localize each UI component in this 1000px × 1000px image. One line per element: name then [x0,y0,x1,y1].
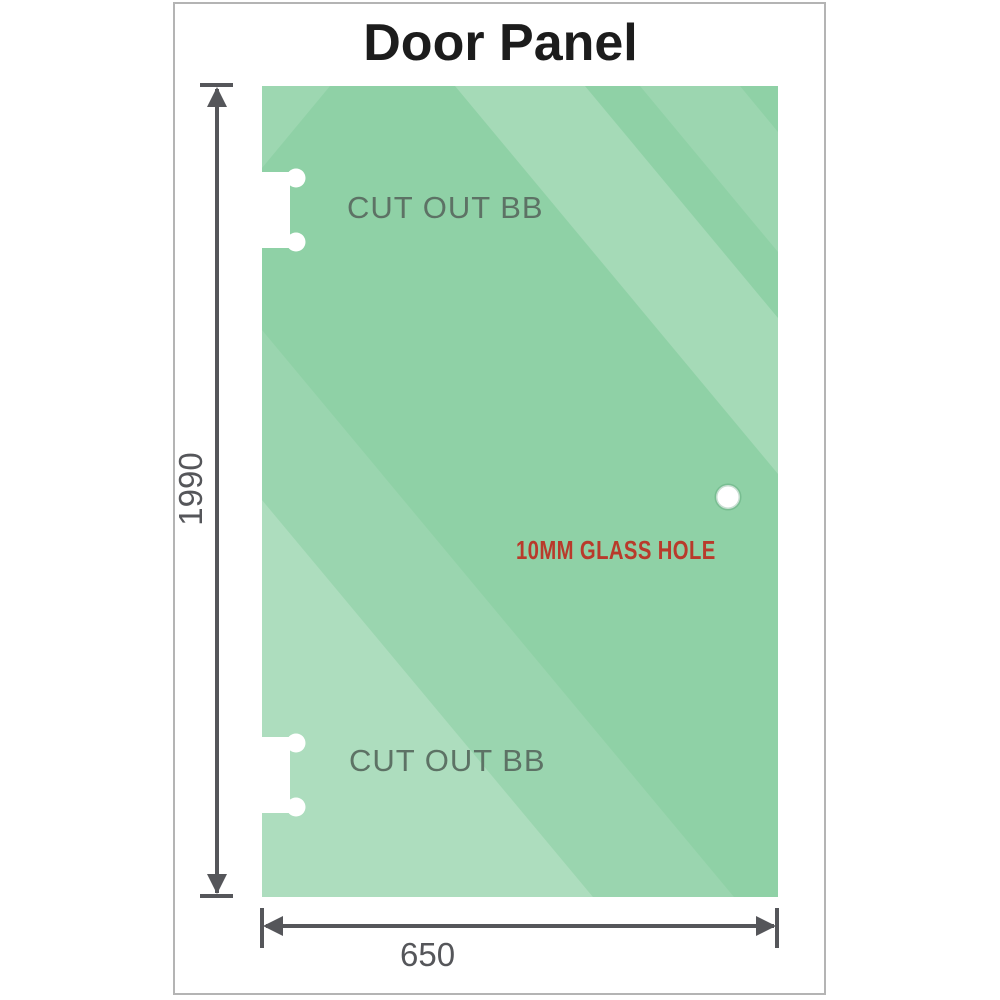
glass-hole-label: 10MM GLASS HOLE [516,537,716,563]
cutout-label-top: CUT OUT BB [347,192,544,223]
cutout-slot [262,737,290,813]
dimension-tick [200,83,233,87]
cutout-slot [262,172,290,248]
diagram-canvas: Door Panel CUT OUT BB CUT OUT BB 10MM GL… [0,0,1000,1000]
glass-hole [716,485,740,509]
cutout-lobe [287,233,306,252]
arrowhead-down-icon [207,874,227,894]
cutout-lobe [287,734,306,753]
cutout-label-bottom: CUT OUT BB [349,745,546,776]
dimension-line [215,89,219,893]
dimension-tick [260,908,264,948]
arrowhead-right-icon [756,916,776,936]
cutout-lobe [287,798,306,817]
arrowhead-left-icon [263,916,283,936]
height-dimension-value: 1990 [172,439,208,539]
dimension-line [266,924,774,928]
cutout-lobe [287,169,306,188]
arrowhead-up-icon [207,87,227,107]
door-panel-diagram [0,0,1000,1000]
dimension-tick [775,908,779,948]
width-dimension-value: 650 [400,938,455,971]
dimension-tick [200,894,233,898]
diagram-title: Door Panel [174,15,827,72]
width-dimension-arrow [260,908,779,948]
